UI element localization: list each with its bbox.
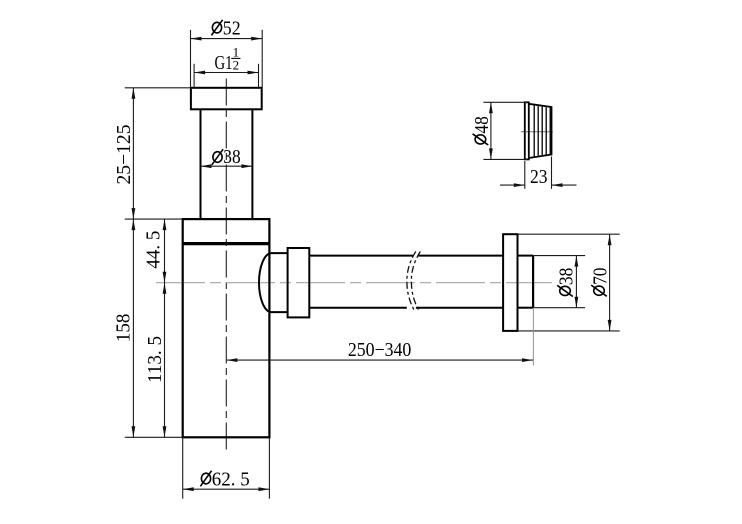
svg-text:23: 23	[530, 166, 548, 188]
svg-text:38: 38	[556, 268, 578, 285]
svg-text:48: 48	[471, 116, 493, 133]
svg-text:70: 70	[590, 268, 612, 285]
svg-text:158: 158	[113, 314, 135, 343]
svg-text:62. 5: 62. 5	[212, 469, 250, 491]
svg-text:44. 5: 44. 5	[143, 231, 165, 269]
svg-text:25−125: 25−125	[113, 125, 135, 185]
svg-text:2: 2	[233, 57, 240, 72]
svg-text:38: 38	[223, 146, 240, 168]
svg-text:250−340: 250−340	[348, 339, 412, 361]
svg-text:52: 52	[223, 18, 241, 40]
svg-text:G1: G1	[215, 52, 233, 74]
svg-text:113. 5: 113. 5	[144, 336, 166, 383]
